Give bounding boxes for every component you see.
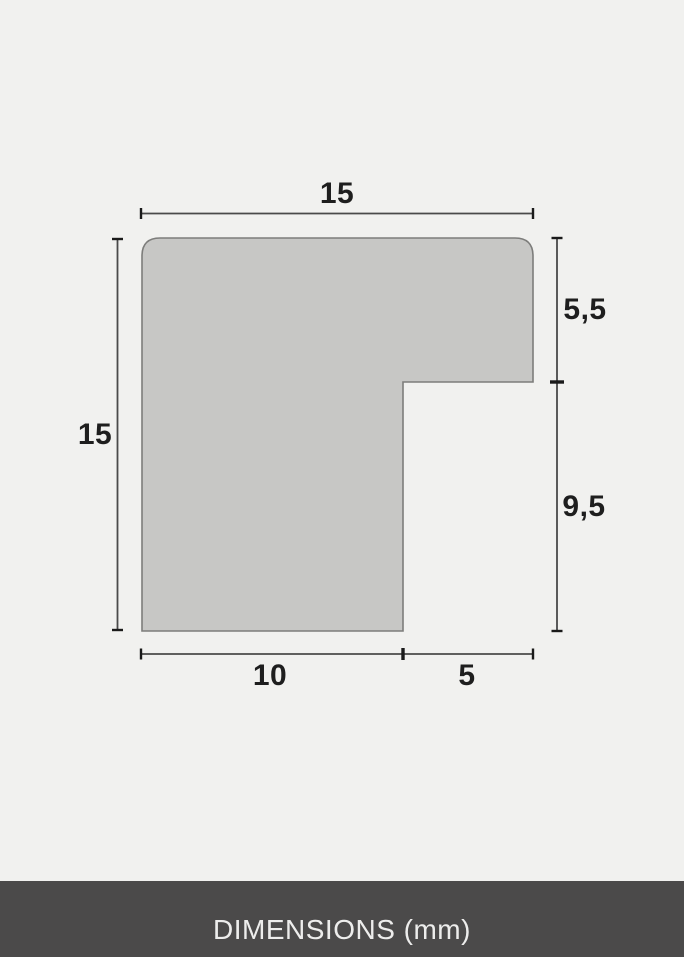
profile-drawing [0,0,684,957]
dimension-label-bottom-right-width: 5 [458,659,475,693]
dimension-label-bottom-left-width: 10 [253,659,287,693]
footer-bar: DIMENSIONS (mm) [0,881,684,957]
dimension-label-right-lower-height: 9,5 [562,490,605,524]
footer-title: DIMENSIONS (mm) [213,914,471,946]
dimension-label-right-upper-height: 5,5 [563,293,606,327]
profile-shape [142,238,533,631]
dimension-label-left-height: 15 [78,418,112,452]
left-dimension [112,239,123,630]
right-dimension [550,238,564,631]
diagram-canvas: 15 15 5,5 9,5 10 5 DIMENSIONS (mm) [0,0,684,957]
dimension-label-top-width: 15 [320,177,354,211]
